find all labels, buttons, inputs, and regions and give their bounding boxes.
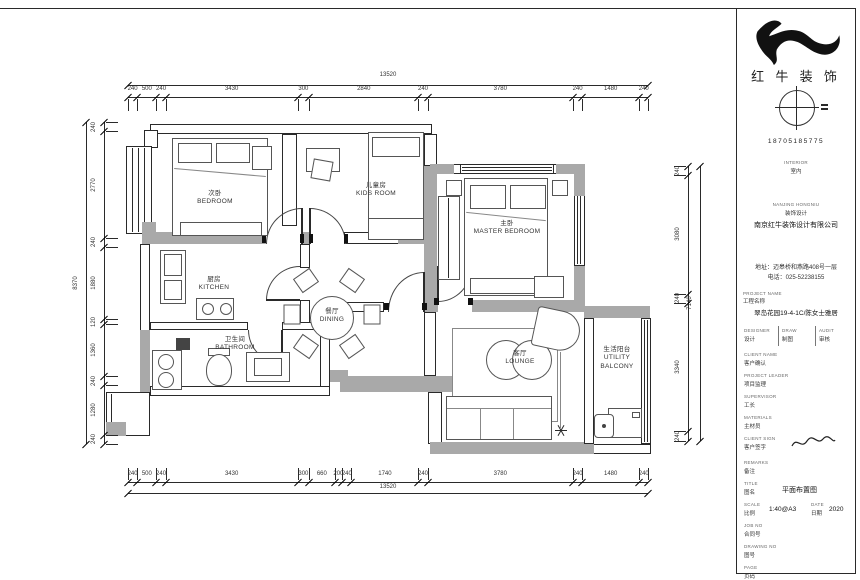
project-label-cn: 工程名称 [743, 297, 765, 305]
dimension-mark [674, 303, 686, 304]
dimension-value: 240 [91, 426, 99, 452]
firm-address: 地址：迈皋桥和燕路408号一层 [737, 262, 855, 271]
page-label-cn: 页码 [744, 572, 755, 580]
dimension-value: 300 [287, 86, 319, 94]
dimension-mark [106, 435, 118, 436]
dimension-value: 240 [407, 471, 439, 479]
dimension-value: 3430 [216, 471, 248, 479]
dimension-value: 240 [145, 86, 177, 94]
dimension-value: 240 [675, 423, 683, 449]
dimension-layer: 1352024050024034303002840240378024014802… [0, 0, 860, 580]
project-label-en: PROJECT NAME [743, 291, 782, 296]
row-leader-cn: 项目监理 [744, 380, 766, 388]
dept-label-en: INTERIOR [737, 160, 855, 165]
dimension-mark [86, 122, 87, 444]
dimension-value: 240 [562, 471, 594, 479]
scale-label-cn: 比例 [744, 509, 755, 517]
dimension-mark [128, 493, 648, 494]
dimension-mark [166, 99, 167, 111]
col-audit-en: AUDIT [819, 328, 834, 333]
row-supervisor-cn: 工长 [744, 401, 755, 409]
dimension-mark [674, 441, 686, 442]
row-materials-en: MATERIALS [744, 415, 772, 420]
dimension-mark [582, 468, 583, 480]
row-remarks-en: REMARKS [744, 460, 768, 465]
dimension-value: 1360 [91, 337, 99, 363]
job-label-cn: 合同号 [744, 530, 761, 538]
row-client-cn: 客户确认 [744, 359, 766, 367]
col-designer-en: DESIGNER [744, 328, 770, 333]
row-sign-en: CLIENT SIGN [744, 436, 775, 441]
dimension-mark [156, 99, 157, 111]
col-draw-cn: 制图 [782, 335, 793, 343]
floor-plan: 次卧BEDROOM 儿童房KIDS ROOM 主卧MASTER BEDROOM … [0, 0, 860, 580]
date-label-cn: 日期 [811, 509, 822, 517]
dimension-mark [573, 99, 574, 111]
dimension-value: 240 [675, 285, 683, 311]
row-supervisor-en: SUPERVISOR [744, 394, 776, 399]
col-draw-en: DRAW [782, 328, 797, 333]
dimension-value: 1740 [369, 471, 401, 479]
dimension-value: 240 [145, 471, 177, 479]
dimension-value: 3780 [484, 86, 516, 94]
firm-cn-small: 装饰设计 [737, 209, 855, 217]
dimension-mark [674, 175, 686, 176]
dimension-value: 1480 [595, 86, 627, 94]
dimension-mark [106, 376, 118, 377]
dimension-mark [648, 99, 649, 111]
dimension-mark [106, 122, 118, 123]
dimension-value: 3780 [484, 471, 516, 479]
firm-en: NANJING HONGNIU [737, 202, 855, 207]
client-signature [789, 434, 837, 452]
firm-name: 南京红牛装饰设计有限公司 [737, 220, 855, 230]
col-audit-cn: 审核 [819, 335, 830, 343]
dimension-mark [106, 247, 118, 248]
col-designer-cn: 设计 [744, 335, 755, 343]
compass-mark [821, 104, 828, 106]
row-client-en: CLIENT NAME [744, 352, 777, 357]
dimension-value: 1280 [91, 397, 99, 423]
dimension-value: 240 [628, 471, 660, 479]
dimension-mark [639, 99, 640, 111]
dimension-mark [106, 238, 118, 239]
brand-name: 红 牛 装 饰 [737, 66, 855, 85]
dimension-mark [298, 99, 299, 111]
dimension-mark [700, 166, 701, 441]
dimension-mark [582, 99, 583, 111]
dimension-value: 240 [562, 86, 594, 94]
drawno-label-cn: 图号 [744, 551, 755, 559]
dimension-mark [137, 99, 138, 111]
compass-mark [821, 108, 828, 110]
dimension-mark [166, 468, 167, 480]
drawing-sheet: { "document": { "type": "residential-flo… [0, 0, 860, 580]
title-label-cn: 图名 [744, 488, 755, 496]
dimension-mark [104, 122, 105, 444]
dimension-value: 2840 [348, 86, 380, 94]
dimension-mark [106, 319, 118, 320]
job-label-en: JOB NO [744, 523, 763, 528]
dimension-value: 1880 [91, 270, 99, 296]
date-value: 2020 [829, 506, 843, 513]
row-sign-cn: 客户签字 [744, 443, 766, 451]
dimension-value: 3340 [675, 354, 683, 380]
dimension-mark [648, 468, 649, 480]
dimension-mark [106, 444, 118, 445]
drawing-title: 平面布置图 [782, 485, 817, 495]
scale-label-en: SCALE [744, 502, 760, 507]
dimension-value: 240 [91, 229, 99, 255]
project-name: 翠岛花园19-4-1C/陈女士雅居 [737, 307, 855, 317]
dimension-value: 13520 [368, 484, 408, 492]
dimension-value: 240 [675, 158, 683, 184]
dimension-value: 1480 [595, 471, 627, 479]
title-label-en: TITLE [744, 481, 758, 486]
compass-icon [779, 90, 815, 126]
dimension-value: 8370 [73, 270, 81, 296]
row-leader-en: PROJECT LEADER [744, 373, 788, 378]
dimension-value: 13520 [368, 72, 408, 80]
dimension-value: 240 [91, 368, 99, 394]
bull-logo-icon [747, 16, 845, 66]
dimension-mark [418, 99, 419, 111]
dimension-mark [428, 99, 429, 111]
drawno-label-en: DRAWING NO [744, 544, 777, 549]
dimension-value: 240 [331, 471, 363, 479]
page-label-en: PAGE [744, 565, 757, 570]
dimension-mark [106, 324, 118, 325]
dimension-value: 240 [91, 114, 99, 140]
dimension-mark [106, 131, 118, 132]
dimension-mark [309, 99, 310, 111]
row-remarks-cn: 备注 [744, 467, 755, 475]
title-block: 红 牛 装 饰 18705185775 INTERIOR 室内 NANJING … [737, 8, 855, 574]
row-materials-cn: 主材员 [744, 422, 761, 430]
firm-tel: 电话：025-52238155 [737, 272, 855, 281]
dept-label-cn: 室内 [737, 167, 855, 175]
dimension-value: 240 [628, 86, 660, 94]
dimension-value: 3430 [216, 86, 248, 94]
dimension-mark [428, 468, 429, 480]
dimension-mark [106, 385, 118, 386]
dimension-mark [351, 468, 352, 480]
date-label-en: DATE [811, 502, 824, 507]
dimension-mark [128, 99, 129, 111]
dimension-value: 120 [91, 309, 99, 335]
dimension-value: 3080 [675, 221, 683, 247]
scale-value: 1:40@A3 [769, 506, 796, 513]
phone-number: 18705185775 [737, 138, 855, 145]
dimension-value: 240 [407, 86, 439, 94]
dimension-value: 2770 [91, 172, 99, 198]
